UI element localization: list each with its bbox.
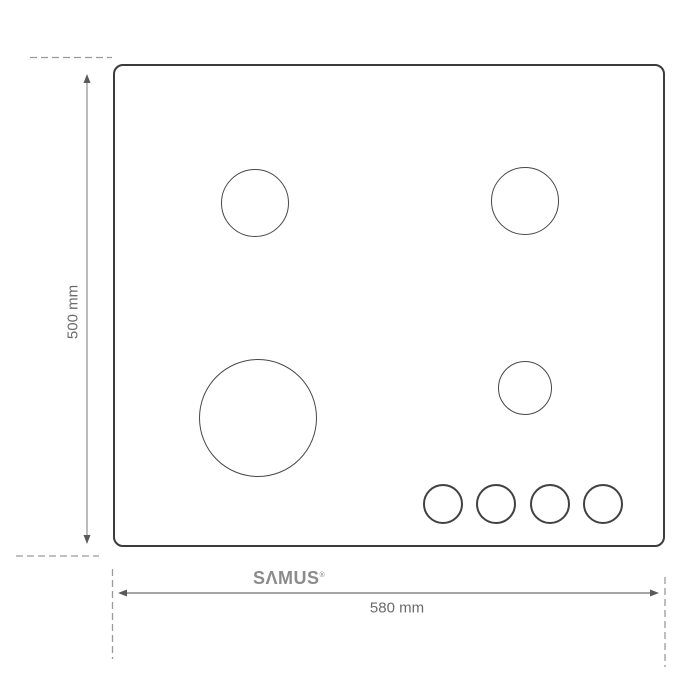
arrowhead-down-icon [84, 535, 91, 544]
brand-logo: SΛMUS® [253, 569, 325, 587]
dimension-diagram: SΛMUS® 500 mm 580 mm [0, 0, 700, 700]
burner-bottom-left [199, 359, 317, 477]
control-knob-3 [530, 484, 570, 524]
brand-logo-text: SΛMUS [253, 568, 320, 588]
control-knob-2 [476, 484, 516, 524]
control-knob-4 [583, 484, 623, 524]
control-knob-1 [423, 484, 463, 524]
arrowhead-right-icon [650, 590, 659, 597]
arrowhead-up-icon [84, 74, 91, 83]
burner-mid-right [498, 361, 552, 415]
burner-top-right [491, 167, 559, 235]
height-dimension-label: 500 mm [66, 285, 81, 339]
width-dimension-label: 580 mm [370, 601, 424, 616]
arrowhead-left-icon [118, 590, 127, 597]
registered-trademark-icon: ® [320, 572, 325, 579]
cooktop-outline: SΛMUS® [113, 64, 665, 547]
burner-top-left [221, 169, 289, 237]
